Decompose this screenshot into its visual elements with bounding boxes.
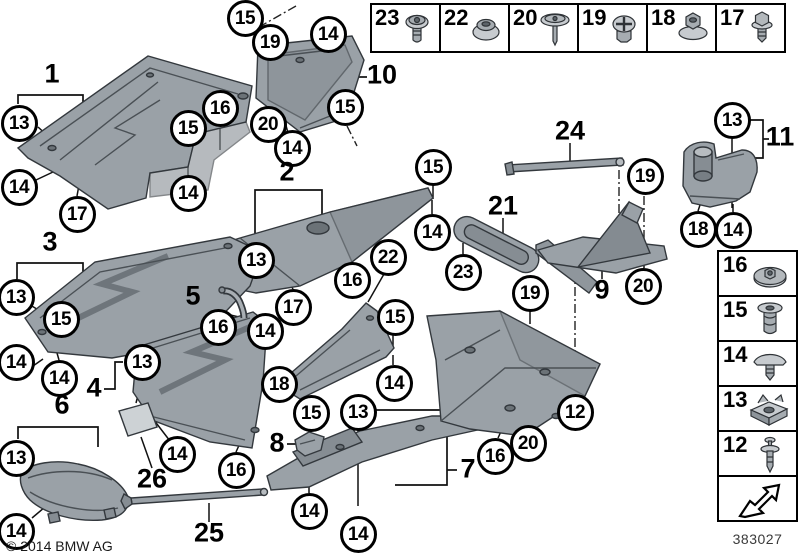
callout-16: 16 bbox=[202, 90, 239, 127]
part-11-wheel-arch-bracket bbox=[683, 142, 757, 207]
callout-14: 14 bbox=[376, 365, 413, 402]
callout-14: 14 bbox=[1, 169, 38, 206]
legend-item-18: 18 bbox=[646, 3, 717, 53]
part-label-6: 6 bbox=[54, 390, 69, 421]
callout-14: 14 bbox=[414, 214, 451, 251]
callout-13: 13 bbox=[340, 394, 377, 431]
legend-direction-box bbox=[717, 475, 798, 522]
part-label-2: 2 bbox=[279, 157, 294, 188]
washer-head-screw-icon bbox=[533, 8, 577, 52]
callout-14: 14 bbox=[0, 344, 35, 381]
flange-nut-icon bbox=[671, 8, 715, 52]
callout-13: 13 bbox=[1, 105, 38, 142]
legend-item-23: 23 bbox=[370, 3, 441, 53]
legend-item-12: 12 bbox=[717, 430, 798, 477]
torx-screw-icon bbox=[395, 8, 439, 52]
callout-14: 14 bbox=[170, 175, 207, 212]
callout-17: 17 bbox=[59, 196, 96, 233]
callout-13: 13 bbox=[124, 344, 161, 381]
legend-item-19: 19 bbox=[577, 3, 648, 53]
part-label-21: 21 bbox=[488, 191, 518, 222]
callout-13: 13 bbox=[0, 279, 35, 316]
push-rivet-icon bbox=[742, 434, 794, 477]
callout-23: 23 bbox=[445, 254, 482, 291]
legend-item-16: 16 bbox=[717, 250, 798, 297]
legend-item-22: 22 bbox=[439, 3, 510, 53]
direction-arrow-icon bbox=[733, 479, 785, 522]
part-label-7: 7 bbox=[460, 454, 475, 485]
blind-rivet-icon bbox=[742, 299, 794, 342]
callout-22: 22 bbox=[370, 239, 407, 276]
callout-16: 16 bbox=[200, 309, 237, 346]
callout-14: 14 bbox=[340, 516, 377, 553]
callout-19: 19 bbox=[627, 158, 664, 195]
plastic-nut-icon bbox=[464, 8, 508, 52]
callout-16: 16 bbox=[334, 262, 371, 299]
part-9-support-bracket bbox=[538, 202, 667, 273]
callout-19: 19 bbox=[512, 275, 549, 312]
part-label-26: 26 bbox=[137, 464, 167, 495]
hex-bolt-icon bbox=[740, 8, 784, 52]
washer-nut-icon bbox=[742, 254, 794, 297]
part-label-25: 25 bbox=[194, 518, 224, 549]
legend-item-20: 20 bbox=[508, 3, 579, 53]
diagram-artwork bbox=[0, 0, 800, 560]
expanding-rivet-icon bbox=[602, 8, 646, 52]
callout-14: 14 bbox=[310, 16, 347, 53]
part-label-5: 5 bbox=[185, 281, 200, 312]
part-label-24: 24 bbox=[555, 116, 585, 147]
callout-20: 20 bbox=[510, 425, 547, 462]
callout-18: 18 bbox=[261, 366, 298, 403]
callout-15: 15 bbox=[415, 149, 452, 186]
callout-16: 16 bbox=[218, 452, 255, 489]
part-label-3: 3 bbox=[42, 227, 57, 258]
parts-diagram-page: 1519141314171615141520141318141317162214… bbox=[0, 0, 800, 560]
callout-18: 18 bbox=[680, 211, 717, 248]
callout-15: 15 bbox=[293, 395, 330, 432]
callout-16: 16 bbox=[477, 438, 514, 475]
callout-12: 12 bbox=[557, 394, 594, 431]
callout-14: 14 bbox=[715, 212, 752, 249]
callout-19: 19 bbox=[252, 24, 289, 61]
umbrella-clip-icon bbox=[742, 344, 794, 387]
callout-13: 13 bbox=[0, 440, 35, 477]
part-label-11: 11 bbox=[766, 122, 795, 153]
part-label-1: 1 bbox=[44, 59, 59, 90]
callout-15: 15 bbox=[170, 110, 207, 147]
callout-15: 15 bbox=[377, 299, 414, 336]
cage-nut-icon bbox=[742, 389, 794, 432]
part-label-10: 10 bbox=[367, 60, 397, 91]
callout-20: 20 bbox=[625, 268, 662, 305]
callout-14: 14 bbox=[291, 493, 328, 530]
legend-item-15: 15 bbox=[717, 295, 798, 342]
fastener-legend-right: 16 15 14 bbox=[717, 252, 798, 522]
callout-13: 13 bbox=[714, 102, 751, 139]
legend-item-17: 17 bbox=[715, 3, 786, 53]
legend-item-14: 14 bbox=[717, 340, 798, 387]
catalog-number: 383027 bbox=[717, 531, 798, 547]
part-24-strut-brace bbox=[505, 158, 624, 175]
part-label-8: 8 bbox=[269, 428, 284, 459]
callout-13: 13 bbox=[238, 242, 275, 279]
callout-14: 14 bbox=[247, 313, 284, 350]
callout-15: 15 bbox=[43, 301, 80, 338]
callout-15: 15 bbox=[327, 89, 364, 126]
part-label-4: 4 bbox=[86, 373, 101, 404]
part-label-9: 9 bbox=[594, 275, 609, 306]
legend-item-13: 13 bbox=[717, 385, 798, 432]
fastener-legend-top: 23 22 20 bbox=[372, 3, 786, 53]
copyright-notice: © 2014 BMW AG bbox=[6, 538, 113, 554]
